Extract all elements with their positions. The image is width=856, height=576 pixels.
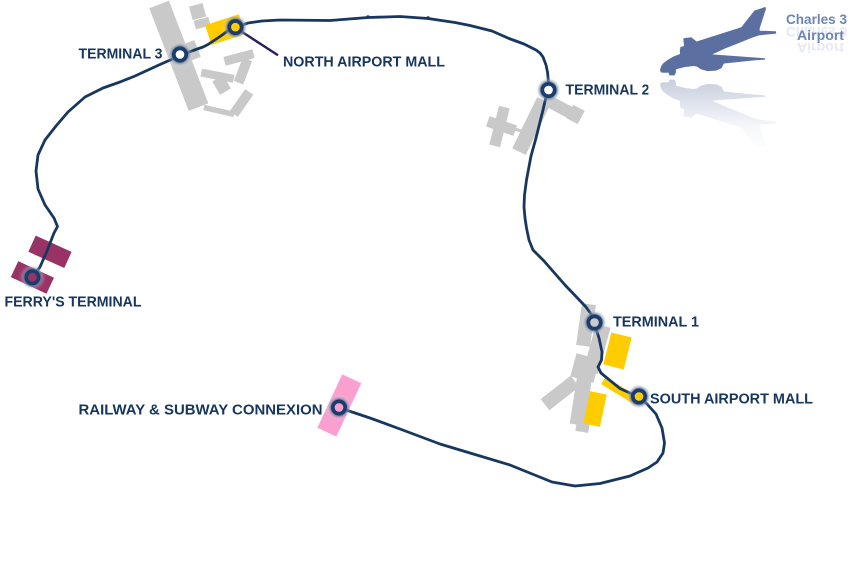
svg-text:TERMINAL 2: TERMINAL 2 — [566, 83, 650, 99]
svg-text:RAILWAY & SUBWAY CONNEXION: RAILWAY & SUBWAY CONNEXION — [79, 403, 323, 419]
svg-text:FERRY'S TERMINAL: FERRY'S TERMINAL — [5, 295, 142, 311]
svg-text:NORTH AIRPORT MALL: NORTH AIRPORT MALL — [283, 55, 445, 71]
svg-text:SOUTH AIRPORT MALL: SOUTH AIRPORT MALL — [650, 392, 813, 408]
svg-text:TERMINAL 3: TERMINAL 3 — [79, 47, 163, 63]
svg-text:TERMINAL 1: TERMINAL 1 — [613, 315, 699, 331]
